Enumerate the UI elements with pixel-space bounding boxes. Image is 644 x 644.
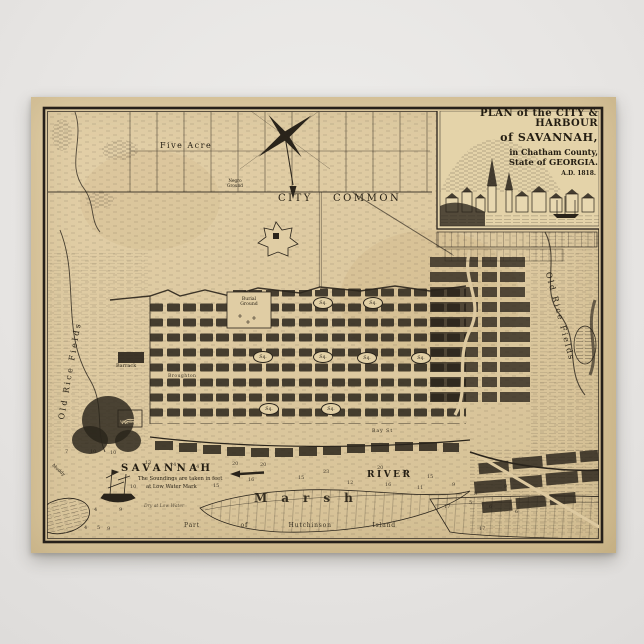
- east-rice-fields: [530, 230, 600, 452]
- burial-ground-square: [227, 292, 271, 328]
- engraver-imprint: [530, 546, 582, 549]
- city-blocks: [150, 286, 466, 424]
- west-rice-fields: [48, 230, 148, 454]
- east-riverfront-blocks: [470, 450, 608, 535]
- map-engraving: [0, 0, 644, 644]
- title-inset: [437, 108, 602, 229]
- product-mockup-background: PLAN of the CITY & HARBOUR of SAVANNAH, …: [0, 0, 644, 644]
